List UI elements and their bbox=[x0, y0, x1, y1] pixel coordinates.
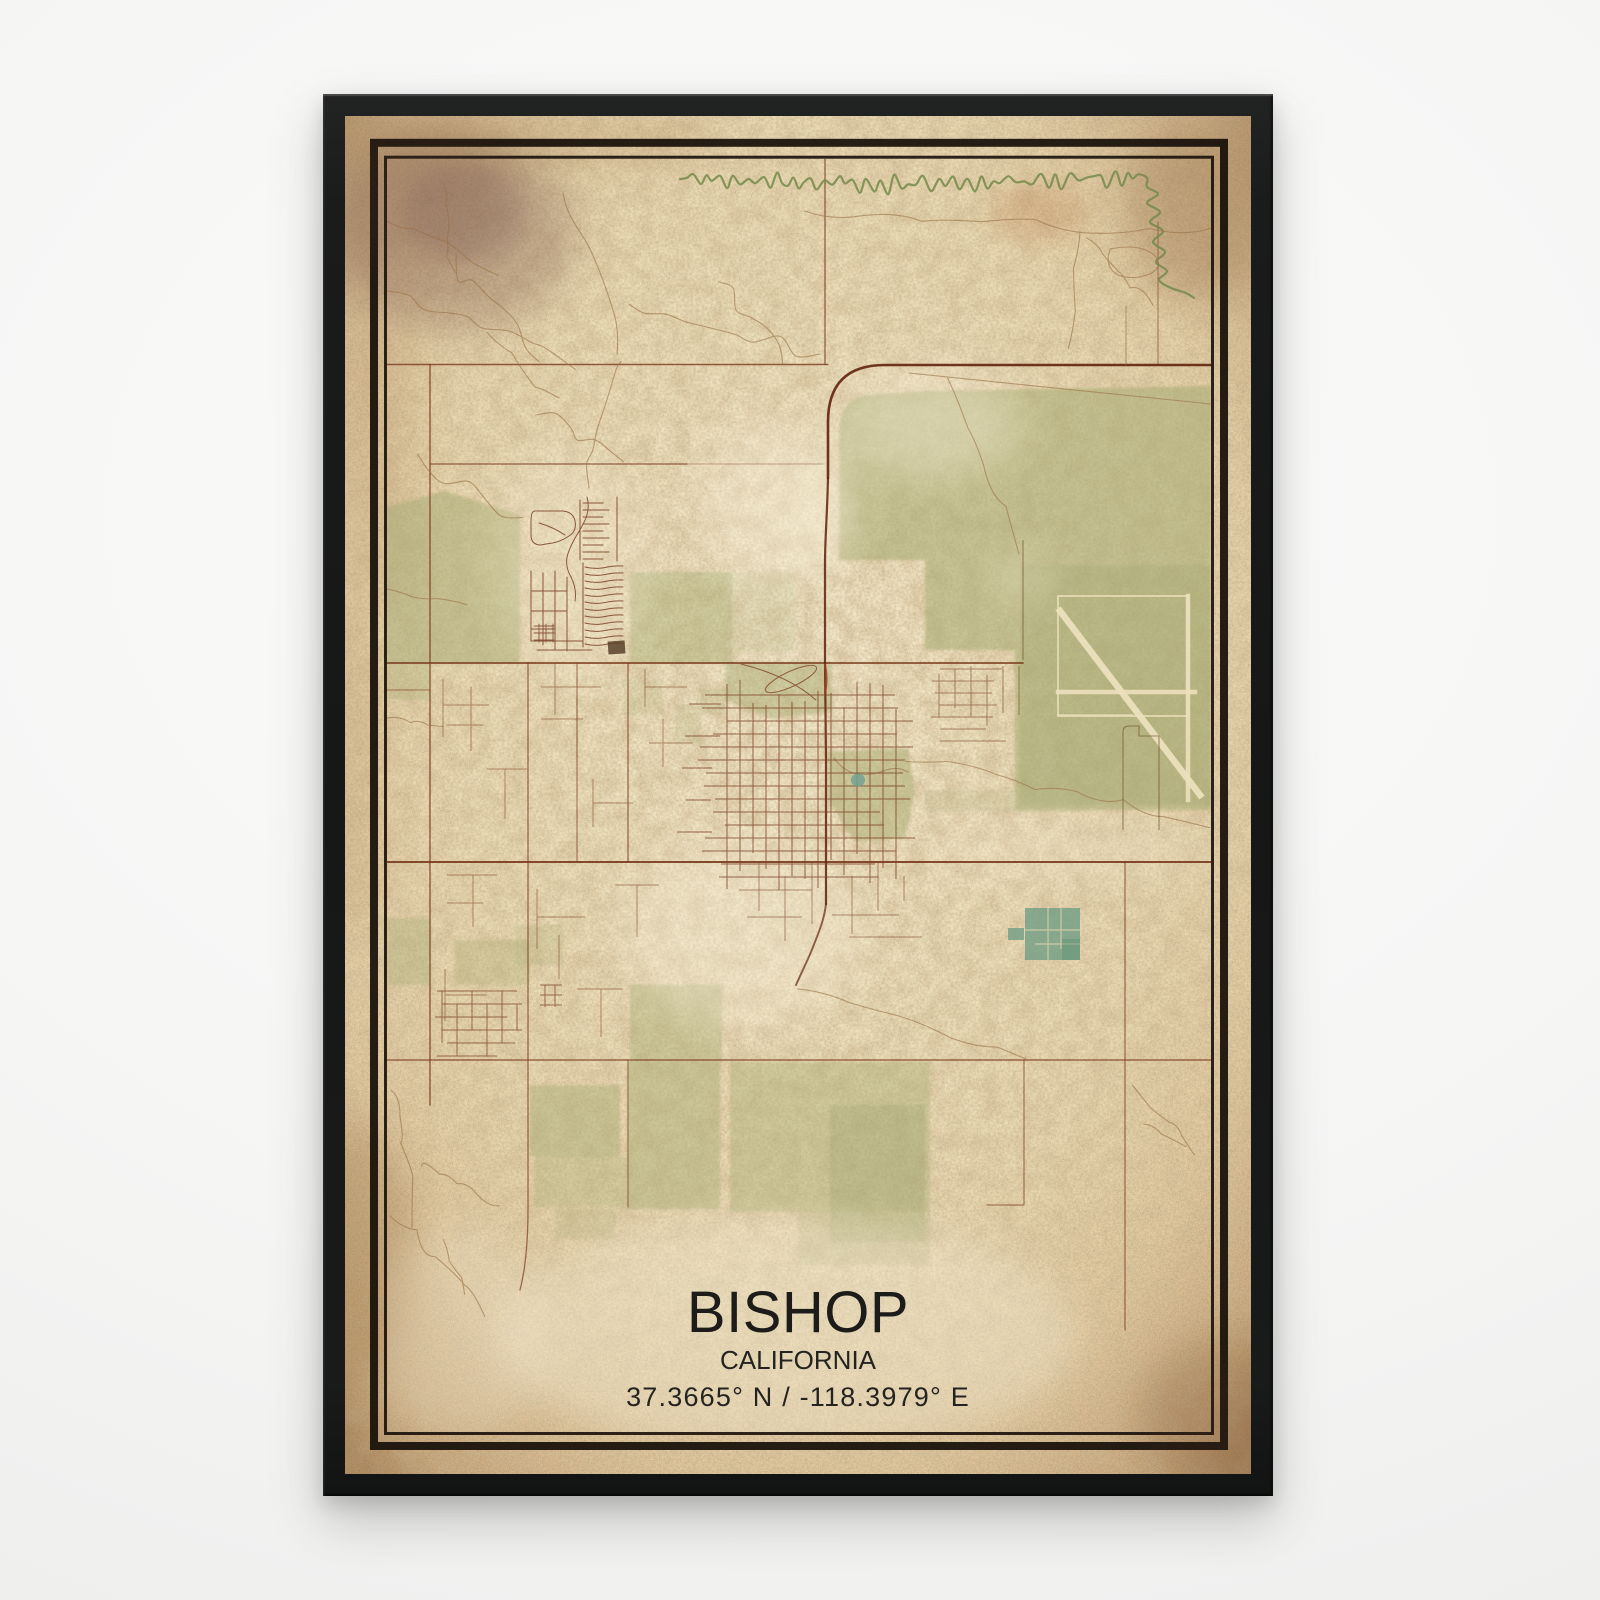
svg-text:CALIFORNIA: CALIFORNIA bbox=[720, 1345, 877, 1375]
svg-text:BISHOP: BISHOP bbox=[687, 1280, 909, 1345]
svg-text:37.3665° N / -118.3979° E: 37.3665° N / -118.3979° E bbox=[626, 1382, 970, 1412]
